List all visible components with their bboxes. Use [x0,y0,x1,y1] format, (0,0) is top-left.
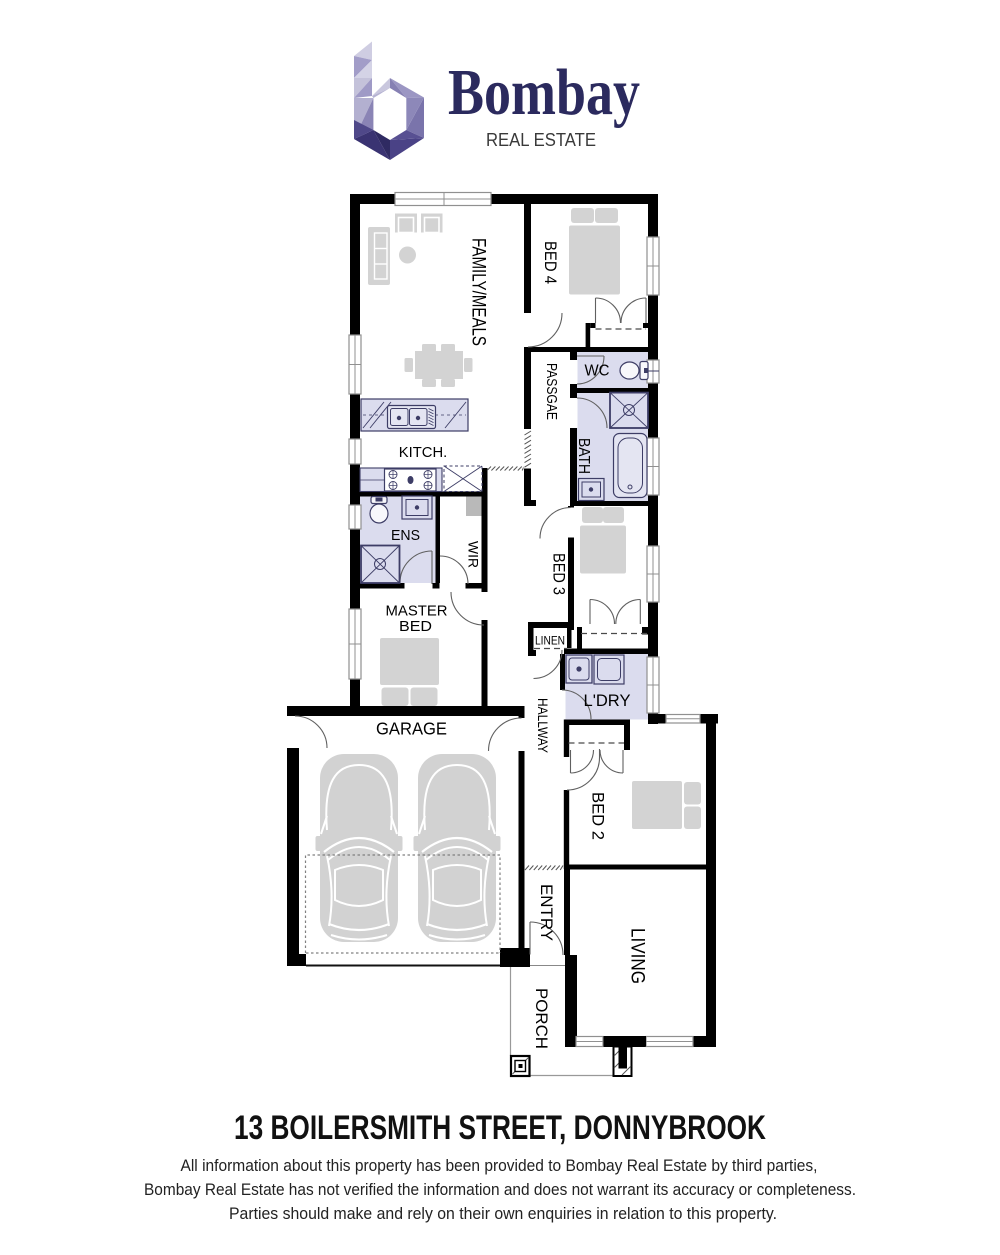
svg-text:WC: WC [585,363,610,380]
svg-text:BATH: BATH [575,438,592,474]
svg-text:KITCH.: KITCH. [399,444,448,461]
svg-text:Bombay: Bombay [448,56,640,129]
svg-text:FAMILY/MEALS: FAMILY/MEALS [468,238,490,346]
svg-text:ENS: ENS [391,527,420,544]
svg-text:PASSGAE: PASSGAE [543,363,560,420]
svg-text:GARAGE: GARAGE [376,719,447,739]
svg-text:LINEN: LINEN [535,636,565,648]
svg-text:MASTER: MASTER [386,603,448,620]
svg-text:BED 4: BED 4 [541,241,560,284]
svg-text:Bombay Real Estate has not ver: Bombay Real Estate has not verified the … [144,1180,856,1199]
svg-text:LIVING: LIVING [627,928,648,984]
svg-text:Parties should make and rely o: Parties should make and rely on their ow… [229,1204,777,1223]
svg-text:HALLWAY: HALLWAY [535,698,550,753]
svg-text:All information about this pro: All information about this property has … [181,1156,818,1175]
svg-text:REAL ESTATE: REAL ESTATE [486,130,596,150]
svg-text:BED: BED [399,618,432,635]
svg-text:ENTRY: ENTRY [537,884,556,941]
svg-text:13 BOILERSMITH STREET, DONNYBR: 13 BOILERSMITH STREET, DONNYBROOK [234,1109,766,1147]
svg-text:BED 3: BED 3 [550,553,569,595]
svg-text:WIR: WIR [466,541,482,568]
svg-text:PORCH: PORCH [532,988,551,1049]
svg-text:L'DRY: L'DRY [584,692,631,710]
svg-text:BED 2: BED 2 [589,792,608,840]
